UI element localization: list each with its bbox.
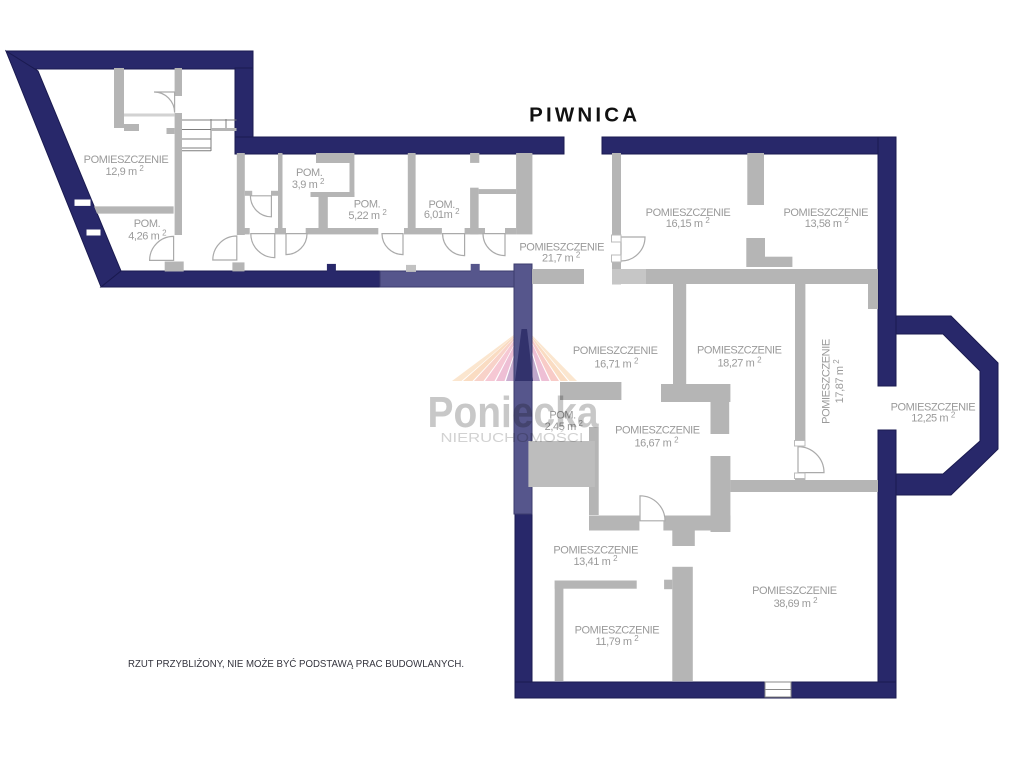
svg-text:17,87 m 2: 17,87 m 2 xyxy=(832,359,846,404)
svg-text:POMIESZCZENIE: POMIESZCZENIE xyxy=(84,154,169,166)
svg-text:POM.: POM. xyxy=(296,167,323,179)
svg-text:POMIESZCZENIE: POMIESZCZENIE xyxy=(752,585,837,597)
svg-text:5,22 m 2: 5,22 m 2 xyxy=(348,208,387,222)
svg-text:PIWNICA: PIWNICA xyxy=(529,104,640,127)
svg-text:POM.: POM. xyxy=(354,199,381,211)
svg-text:POMIESZCZENIE: POMIESZCZENIE xyxy=(821,339,833,424)
svg-text:13,41 m 2: 13,41 m 2 xyxy=(573,554,618,568)
svg-text:NIERUCHOMOŚCI: NIERUCHOMOŚCI xyxy=(441,430,584,445)
svg-text:12,25 m 2: 12,25 m 2 xyxy=(911,411,956,425)
svg-text:POMIESZCZENIE: POMIESZCZENIE xyxy=(615,424,700,436)
svg-text:12,9 m 2: 12,9 m 2 xyxy=(106,164,145,178)
svg-text:13,58 m 2: 13,58 m 2 xyxy=(805,216,850,230)
svg-text:POMIESZCZENIE: POMIESZCZENIE xyxy=(575,624,660,636)
svg-text:POMIESZCZENIE: POMIESZCZENIE xyxy=(697,345,782,357)
svg-text:18,27 m 2: 18,27 m 2 xyxy=(717,356,762,370)
svg-text:21,7 m 2: 21,7 m 2 xyxy=(542,251,581,265)
svg-text:6,01m 2: 6,01m 2 xyxy=(424,207,460,221)
svg-text:POMIESZCZENIE: POMIESZCZENIE xyxy=(573,345,658,357)
svg-text:4,26 m 2: 4,26 m 2 xyxy=(128,229,167,243)
svg-text:16,15 m 2: 16,15 m 2 xyxy=(666,216,711,230)
svg-text:POMIESZCZENIE: POMIESZCZENIE xyxy=(553,545,638,557)
svg-text:16,67 m 2: 16,67 m 2 xyxy=(634,435,679,449)
svg-text:38,69 m 2: 38,69 m 2 xyxy=(774,596,819,610)
svg-text:RZUT PRZYBLIŻONY, NIE MOŻE BYĆ: RZUT PRZYBLIŻONY, NIE MOŻE BYĆ PODSTAWĄ … xyxy=(128,657,464,670)
svg-text:POM.: POM. xyxy=(134,218,161,230)
svg-text:16,71 m 2: 16,71 m 2 xyxy=(594,357,639,371)
svg-text:11,79 m 2: 11,79 m 2 xyxy=(595,634,639,648)
